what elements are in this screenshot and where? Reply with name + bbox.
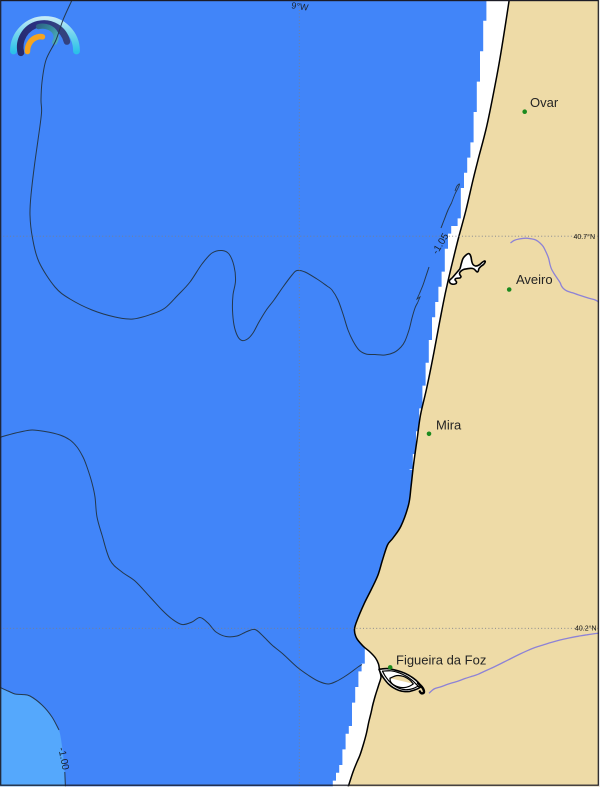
svg-text:Mira: Mira bbox=[436, 417, 462, 432]
svg-text:Ovar: Ovar bbox=[530, 95, 559, 110]
svg-text:40.7°N: 40.7°N bbox=[574, 233, 595, 241]
svg-text:Aveiro: Aveiro bbox=[516, 272, 553, 287]
svg-text:40.2°N: 40.2°N bbox=[575, 625, 596, 633]
svg-text:Figueira da Foz: Figueira da Foz bbox=[396, 652, 486, 667]
